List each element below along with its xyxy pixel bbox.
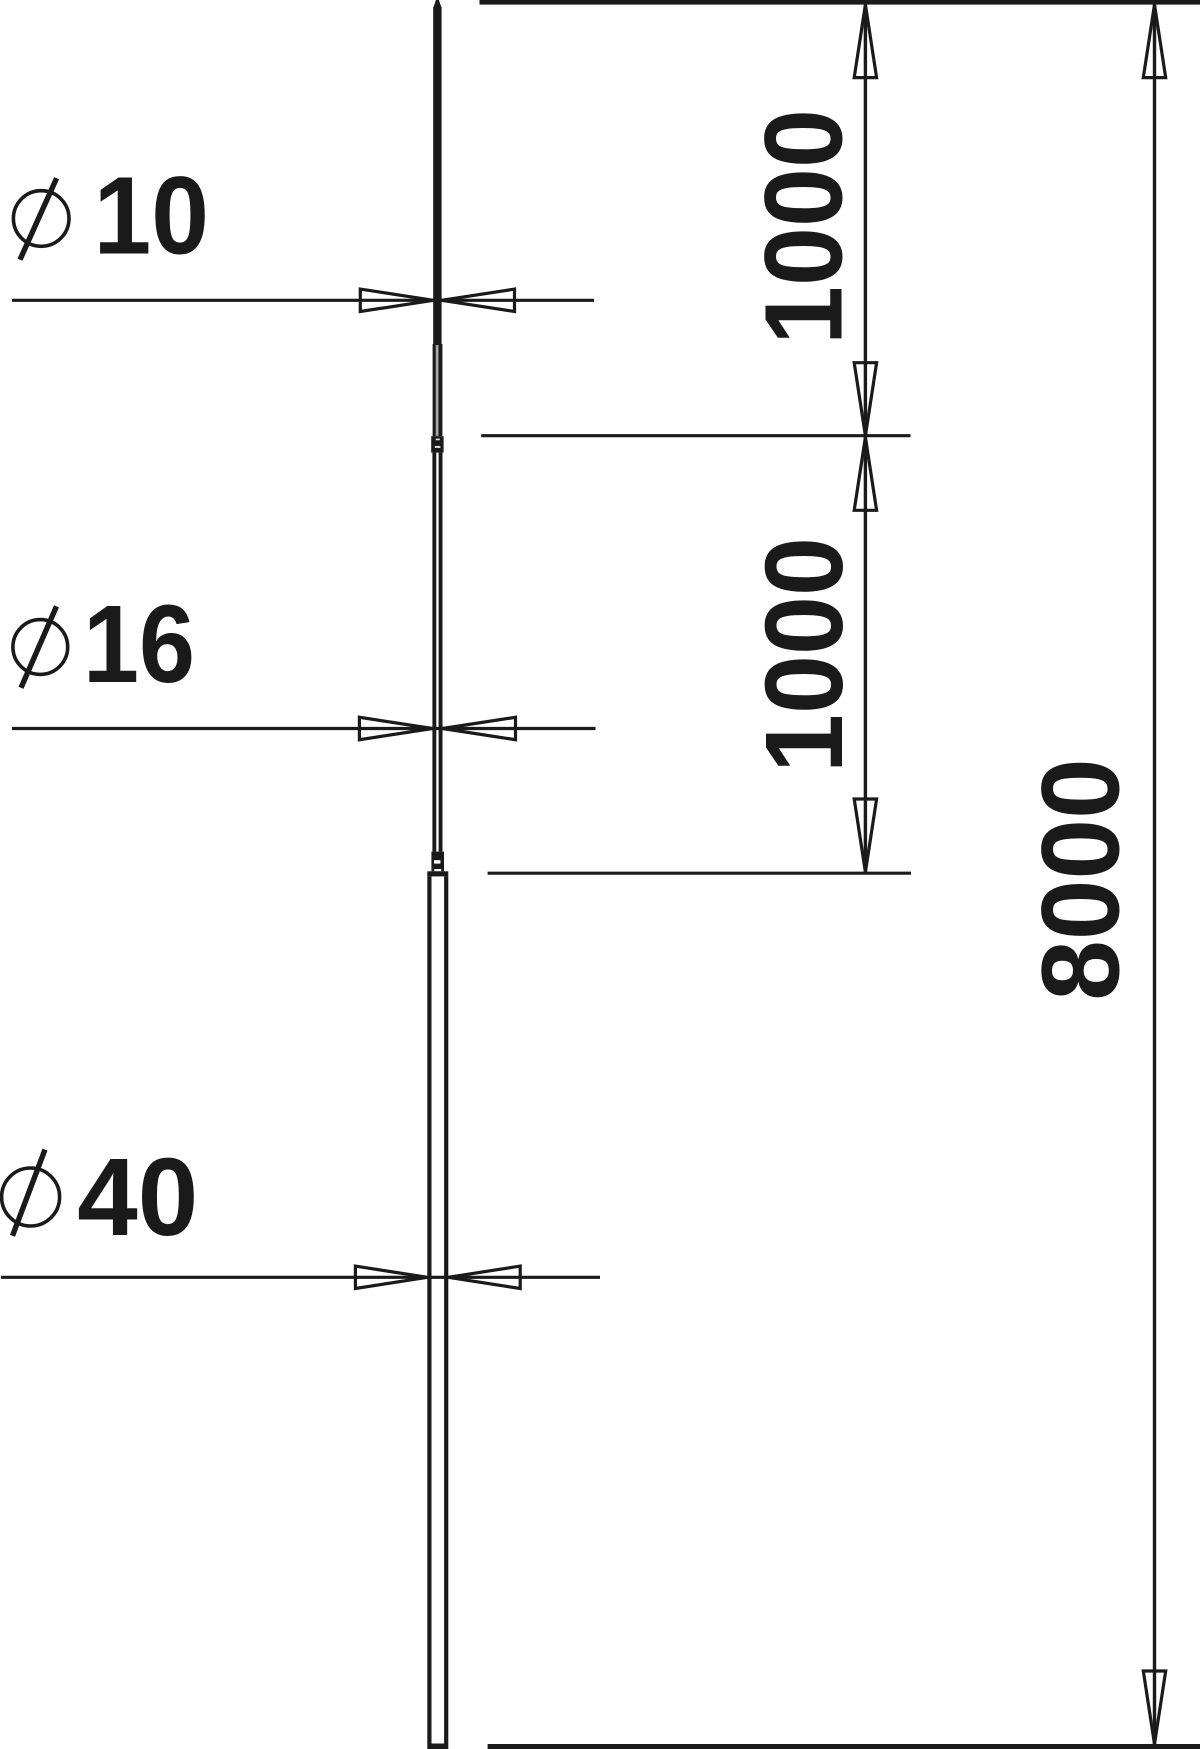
svg-text:8000: 8000: [1019, 758, 1142, 1001]
svg-text:16: 16: [83, 583, 195, 706]
svg-text:1000: 1000: [743, 537, 866, 773]
svg-text:10: 10: [94, 155, 210, 278]
svg-text:40: 40: [77, 1136, 198, 1259]
svg-text:1000: 1000: [743, 109, 866, 345]
